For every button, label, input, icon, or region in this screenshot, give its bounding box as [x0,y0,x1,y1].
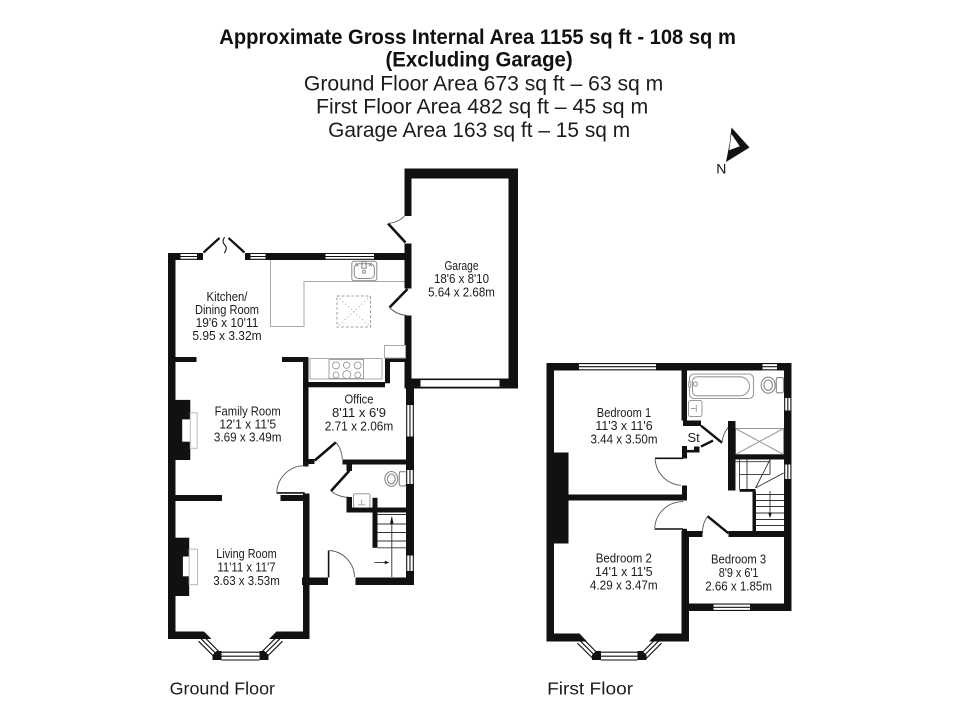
svg-text:St: St [688,430,701,445]
svg-text:5.95 x 3.32m: 5.95 x 3.32m [192,328,261,343]
svg-text:First Floor: First Floor [547,679,633,699]
svg-text:3.44 x 3.50m: 3.44 x 3.50m [591,431,658,446]
svg-text:5.64 x 2.68m: 5.64 x 2.68m [428,284,495,299]
svg-text:3.63 x 3.53m: 3.63 x 3.53m [213,573,280,588]
svg-text:4.29 x 3.47m: 4.29 x 3.47m [590,578,658,593]
svg-text:2.66 x 1.85m: 2.66 x 1.85m [705,579,772,594]
svg-text:3.69 x 3.49m: 3.69 x 3.49m [214,429,282,444]
svg-text:(Excluding Garage): (Excluding Garage) [386,49,573,72]
svg-text:First Floor Area 482 sq ft – 4: First Floor Area 482 sq ft – 45 sq m [316,96,648,119]
svg-text:2.71 x 2.06m: 2.71 x 2.06m [325,418,394,433]
svg-text:Approximate Gross Internal Are: Approximate Gross Internal Area 1155 sq … [219,26,736,49]
svg-text:N: N [716,160,726,176]
svg-text:Garage Area 163 sq ft – 15 sq: Garage Area 163 sq ft – 15 sq m [328,119,630,142]
svg-text:Ground Floor: Ground Floor [170,679,276,699]
svg-text:Ground Floor Area 673 sq ft –: Ground Floor Area 673 sq ft – 63 sq m [304,73,663,96]
